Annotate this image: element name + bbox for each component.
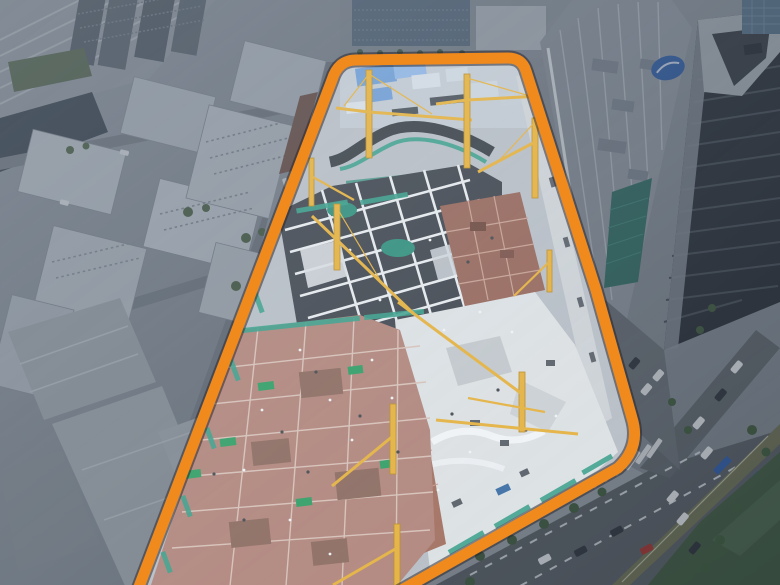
aerial-photo-stage <box>0 0 780 585</box>
haze-overlay <box>0 0 780 585</box>
aerial-construction-site-photo <box>0 0 780 585</box>
